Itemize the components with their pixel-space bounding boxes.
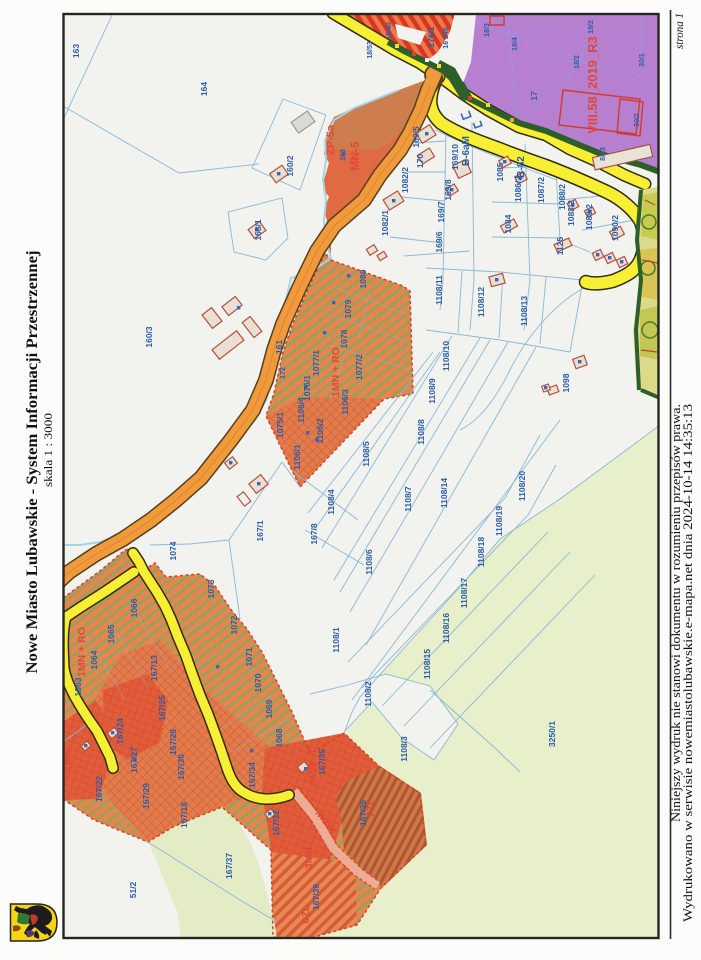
svg-text:1106/1: 1106/1 xyxy=(292,444,302,470)
svg-text:168/1: 168/1 xyxy=(253,219,263,241)
svg-text:1072: 1072 xyxy=(229,615,239,634)
svg-text:1108/19: 1108/19 xyxy=(494,506,504,537)
svg-text:16 245: 16 245 xyxy=(443,27,450,49)
svg-text:18/4: 18/4 xyxy=(512,37,519,51)
svg-text:1108/8: 1108/8 xyxy=(416,419,426,445)
svg-text:1089/2: 1089/2 xyxy=(584,204,594,230)
svg-text:3250/1: 3250/1 xyxy=(547,721,557,747)
svg-text:Wydrukowano w serwisie nowemia: Wydrukowano w serwisie nowemiastolubawsk… xyxy=(681,404,695,922)
svg-text:ZP-5a: ZP-5a xyxy=(325,124,337,155)
svg-text:167/30: 167/30 xyxy=(176,754,186,780)
svg-text:1079: 1079 xyxy=(343,299,353,318)
svg-text:30/1: 30/1 xyxy=(639,53,646,67)
svg-text:4MN: 4MN xyxy=(307,763,319,785)
svg-text:1084: 1084 xyxy=(503,214,513,233)
svg-text:1108/20: 1108/20 xyxy=(517,471,527,502)
svg-text:strona 1: strona 1 xyxy=(672,13,686,49)
svg-text:1071: 1071 xyxy=(244,647,254,666)
svg-text:1068: 1068 xyxy=(274,728,284,747)
svg-text:1087/2: 1087/2 xyxy=(536,177,546,203)
svg-text:164: 164 xyxy=(199,82,209,96)
svg-text:167/1: 167/1 xyxy=(255,520,265,542)
svg-text:167/8: 167/8 xyxy=(309,523,319,545)
svg-text:1108/5: 1108/5 xyxy=(361,441,371,467)
svg-text:176/1: 176/1 xyxy=(426,26,436,48)
svg-text:1073: 1073 xyxy=(206,579,216,598)
svg-text:3MN: 3MN xyxy=(303,847,315,869)
svg-text:8/23: 8/23 xyxy=(600,147,607,161)
svg-text:1082/1: 1082/1 xyxy=(380,210,390,236)
svg-text:1063: 1063 xyxy=(73,677,83,696)
svg-text:1108/7: 1108/7 xyxy=(403,486,413,512)
svg-text:160/3: 160/3 xyxy=(144,326,154,348)
svg-text:6ZL: 6ZL xyxy=(300,904,312,923)
svg-text:Nowe Miasto Lubawskie - System: Nowe Miasto Lubawskie - System Informacj… xyxy=(24,251,41,674)
svg-text:1076/1: 1076/1 xyxy=(302,375,312,401)
svg-text:B-6aM: B-6aM xyxy=(461,136,472,166)
svg-text:VIII.58_2019_R3: VIII.58_2019_R3 xyxy=(585,36,600,134)
svg-text:1077/2: 1077/2 xyxy=(354,354,364,380)
svg-text:7ZL: 7ZL xyxy=(365,798,377,817)
svg-text:170: 170 xyxy=(415,154,425,168)
svg-text:1078: 1078 xyxy=(339,329,349,348)
svg-text:19/2: 19/2 xyxy=(588,20,595,34)
svg-text:1108/6: 1108/6 xyxy=(364,549,374,575)
svg-text:1066: 1066 xyxy=(129,598,139,617)
svg-text:1106/2: 1106/2 xyxy=(315,418,325,444)
svg-text:167/34: 167/34 xyxy=(247,762,257,788)
svg-text:1064: 1064 xyxy=(89,650,99,669)
svg-text:51/2: 51/2 xyxy=(128,881,138,898)
svg-text:1125: 1125 xyxy=(555,237,565,256)
svg-text:1069: 1069 xyxy=(264,699,274,718)
svg-text:1090/2: 1090/2 xyxy=(610,215,620,241)
svg-text:167/32: 167/32 xyxy=(271,810,281,836)
svg-text:103: 103 xyxy=(340,149,347,161)
svg-text:1108/3: 1108/3 xyxy=(399,736,409,762)
svg-text:1108/1: 1108/1 xyxy=(331,627,341,653)
svg-text:1108/14: 1108/14 xyxy=(439,478,449,509)
svg-text:1108/13: 1108/13 xyxy=(519,296,529,327)
svg-text:169/5: 169/5 xyxy=(411,126,421,148)
svg-text:1108/18: 1108/18 xyxy=(476,537,486,568)
svg-text:161: 161 xyxy=(274,340,284,354)
svg-text:167/13: 167/13 xyxy=(149,655,159,681)
svg-text:1108/15: 1108/15 xyxy=(422,649,432,680)
svg-text:18/53: 18/53 xyxy=(367,41,374,59)
svg-text:167/24: 167/24 xyxy=(115,718,125,744)
svg-text:1070: 1070 xyxy=(253,673,263,692)
svg-text:1MN + RO: 1MN + RO xyxy=(330,347,342,397)
svg-text:1088/2: 1088/2 xyxy=(557,184,567,210)
svg-text:17: 17 xyxy=(529,91,539,101)
svg-text:167/25: 167/25 xyxy=(157,695,167,721)
svg-text:1083/2: 1083/2 xyxy=(566,200,576,226)
svg-text:167/37: 167/37 xyxy=(224,853,234,879)
svg-text:1106/4: 1106/4 xyxy=(296,397,306,423)
svg-text:172: 172 xyxy=(280,367,287,379)
svg-text:1080: 1080 xyxy=(358,269,368,288)
svg-text:1074: 1074 xyxy=(168,541,178,560)
svg-text:1086/2: 1086/2 xyxy=(513,176,523,202)
svg-text:1077/1: 1077/1 xyxy=(311,350,321,376)
svg-text:167/22: 167/22 xyxy=(94,776,104,802)
svg-text:167/29: 167/29 xyxy=(141,783,151,809)
svg-text:167/18: 167/18 xyxy=(179,802,189,828)
svg-text:1082/2: 1082/2 xyxy=(400,167,410,193)
svg-text:169/8: 169/8 xyxy=(443,179,453,201)
svg-text:169/7: 169/7 xyxy=(436,201,446,223)
svg-text:30/2: 30/2 xyxy=(634,113,641,127)
svg-text:MN-5: MN-5 xyxy=(348,141,362,171)
svg-text:1098: 1098 xyxy=(561,373,571,392)
svg-text:167/27: 167/27 xyxy=(129,747,139,773)
svg-text:1108/10: 1108/10 xyxy=(441,341,451,372)
svg-text:1108/9: 1108/9 xyxy=(427,378,437,404)
svg-text:1108/2: 1108/2 xyxy=(363,681,373,707)
svg-text:1108/12: 1108/12 xyxy=(476,287,486,318)
svg-text:1108/16: 1108/16 xyxy=(441,613,451,644)
svg-text:1MN + RO: 1MN + RO xyxy=(76,627,88,677)
svg-text:18/2: 18/2 xyxy=(574,55,581,69)
svg-text:B-82: B-82 xyxy=(516,156,527,178)
svg-text:1075/1: 1075/1 xyxy=(275,412,285,438)
svg-text:167/38: 167/38 xyxy=(311,884,321,910)
svg-text:18/3: 18/3 xyxy=(484,23,491,37)
svg-text:163: 163 xyxy=(71,44,81,58)
svg-text:skala 1 : 3000: skala 1 : 3000 xyxy=(43,413,55,487)
svg-text:160/2: 160/2 xyxy=(285,155,295,177)
svg-text:169/10: 169/10 xyxy=(450,144,460,170)
svg-text:1108/11: 1108/11 xyxy=(434,275,444,305)
svg-text:1108/4: 1108/4 xyxy=(326,489,336,515)
svg-text:18/40: 18/40 xyxy=(386,22,393,40)
svg-text:1108/17: 1108/17 xyxy=(459,578,469,609)
svg-text:1085: 1085 xyxy=(495,162,505,181)
svg-text:1065: 1065 xyxy=(106,624,116,643)
svg-text:169/6: 169/6 xyxy=(434,231,444,253)
svg-text:167/28: 167/28 xyxy=(168,729,178,755)
